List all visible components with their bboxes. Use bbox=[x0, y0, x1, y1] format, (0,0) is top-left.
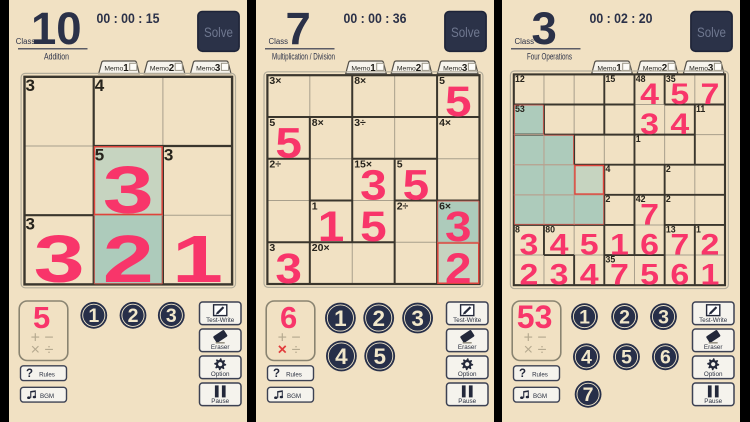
svg-text:2: 2 bbox=[103, 221, 154, 296]
svg-text:12: 12 bbox=[515, 74, 525, 84]
svg-text:5: 5 bbox=[403, 161, 430, 209]
svg-text:3: 3 bbox=[26, 76, 35, 95]
svg-text:4: 4 bbox=[581, 347, 592, 369]
svg-text:1: 1 bbox=[88, 305, 99, 327]
svg-text:5: 5 bbox=[445, 77, 472, 125]
svg-text:Test-Write: Test-Write bbox=[453, 317, 482, 324]
svg-text:3: 3 bbox=[640, 107, 659, 140]
svg-text:Memo: Memo bbox=[150, 65, 169, 72]
svg-text:Rules: Rules bbox=[532, 371, 548, 378]
svg-text:Test-Write: Test-Write bbox=[206, 317, 235, 324]
svg-text:4: 4 bbox=[95, 76, 105, 95]
svg-text:6: 6 bbox=[671, 258, 690, 291]
svg-text:1: 1 bbox=[334, 306, 347, 331]
svg-text:Solve: Solve bbox=[697, 25, 726, 40]
svg-text:8×: 8× bbox=[354, 75, 366, 87]
svg-text:3: 3 bbox=[520, 227, 539, 260]
svg-text:4: 4 bbox=[606, 164, 611, 174]
svg-text:1: 1 bbox=[701, 258, 720, 291]
svg-text:2: 2 bbox=[701, 227, 720, 260]
svg-text:×: × bbox=[524, 342, 533, 359]
svg-text:2: 2 bbox=[662, 63, 668, 74]
svg-text:2: 2 bbox=[445, 244, 472, 292]
svg-text:×: × bbox=[278, 342, 287, 359]
svg-text:3: 3 bbox=[34, 221, 85, 296]
svg-text:Memo: Memo bbox=[196, 65, 215, 72]
svg-text:1: 1 bbox=[318, 202, 345, 250]
svg-text:5: 5 bbox=[275, 119, 302, 167]
svg-text:3: 3 bbox=[166, 305, 177, 327]
svg-text:00 : 00 : 36: 00 : 00 : 36 bbox=[344, 11, 407, 26]
svg-text:3: 3 bbox=[215, 63, 221, 74]
svg-text:4: 4 bbox=[580, 258, 599, 291]
svg-text:15: 15 bbox=[606, 74, 616, 84]
svg-text:Four Operations: Four Operations bbox=[527, 52, 572, 62]
svg-text:Eraser: Eraser bbox=[458, 344, 477, 351]
svg-text:5: 5 bbox=[360, 202, 387, 250]
svg-text:Multiplication / Division: Multiplication / Division bbox=[272, 52, 335, 62]
svg-text:5: 5 bbox=[621, 347, 632, 369]
svg-text:2: 2 bbox=[372, 306, 385, 331]
svg-text:BGM: BGM bbox=[287, 393, 301, 400]
svg-text:Pause: Pause bbox=[211, 398, 229, 405]
svg-text:3÷: 3÷ bbox=[354, 117, 366, 129]
svg-text:2: 2 bbox=[666, 194, 671, 204]
svg-text:7: 7 bbox=[640, 197, 659, 230]
svg-text:3×: 3× bbox=[269, 75, 281, 87]
svg-text:4: 4 bbox=[671, 107, 690, 140]
svg-text:4: 4 bbox=[335, 344, 348, 369]
svg-text:6: 6 bbox=[660, 347, 671, 369]
svg-text:3: 3 bbox=[658, 307, 669, 329]
svg-text:Option: Option bbox=[211, 371, 230, 378]
svg-text:5: 5 bbox=[671, 77, 690, 110]
svg-text:÷: ÷ bbox=[292, 342, 301, 359]
svg-text:BGM: BGM bbox=[533, 393, 547, 400]
svg-text:10: 10 bbox=[31, 3, 82, 54]
svg-text:53: 53 bbox=[517, 299, 553, 335]
svg-text:5: 5 bbox=[580, 227, 599, 260]
svg-text:?: ? bbox=[519, 368, 526, 380]
svg-text:Option: Option bbox=[458, 371, 477, 378]
svg-text:00 : 02 : 20: 00 : 02 : 20 bbox=[590, 11, 653, 26]
svg-text:2: 2 bbox=[520, 258, 539, 291]
svg-text:3: 3 bbox=[708, 63, 714, 74]
svg-text:5: 5 bbox=[373, 344, 386, 369]
svg-text:1: 1 bbox=[172, 221, 223, 296]
svg-text:3: 3 bbox=[532, 3, 557, 54]
svg-text:?: ? bbox=[273, 368, 280, 380]
svg-text:2: 2 bbox=[606, 194, 611, 204]
svg-text:1: 1 bbox=[123, 63, 129, 74]
svg-text:3: 3 bbox=[275, 244, 302, 292]
svg-text:BGM: BGM bbox=[40, 393, 54, 400]
svg-text:Pause: Pause bbox=[458, 398, 476, 405]
svg-text:Option: Option bbox=[704, 371, 723, 378]
svg-text:Eraser: Eraser bbox=[704, 344, 723, 351]
svg-text:2: 2 bbox=[169, 63, 175, 74]
svg-text:3: 3 bbox=[411, 306, 424, 331]
svg-text:7: 7 bbox=[701, 77, 720, 110]
svg-text:3: 3 bbox=[550, 258, 569, 291]
svg-text:53: 53 bbox=[515, 104, 525, 114]
svg-text:Rules: Rules bbox=[39, 371, 55, 378]
svg-text:2: 2 bbox=[666, 164, 671, 174]
svg-text:7: 7 bbox=[286, 3, 311, 54]
svg-text:Solve: Solve bbox=[451, 25, 480, 40]
svg-text:3: 3 bbox=[103, 152, 154, 227]
svg-text:Solve: Solve bbox=[204, 25, 233, 40]
svg-text:?: ? bbox=[26, 368, 33, 380]
svg-text:3: 3 bbox=[164, 145, 173, 164]
svg-text:5: 5 bbox=[640, 258, 659, 291]
svg-text:Addition: Addition bbox=[44, 52, 69, 62]
svg-text:Test-Write: Test-Write bbox=[699, 317, 728, 324]
svg-text:Pause: Pause bbox=[705, 398, 723, 405]
svg-text:1: 1 bbox=[616, 63, 622, 74]
svg-text:÷: ÷ bbox=[538, 342, 547, 359]
svg-text:7: 7 bbox=[671, 227, 690, 260]
svg-text:÷: ÷ bbox=[45, 342, 54, 359]
svg-text:2: 2 bbox=[128, 305, 139, 327]
svg-text:7: 7 bbox=[583, 384, 594, 406]
svg-text:4: 4 bbox=[550, 227, 569, 260]
svg-text:8×: 8× bbox=[312, 117, 324, 129]
svg-text:×: × bbox=[31, 342, 40, 359]
svg-text:2: 2 bbox=[619, 307, 630, 329]
svg-text:1: 1 bbox=[579, 307, 590, 329]
svg-text:00 : 00 : 15: 00 : 00 : 15 bbox=[97, 11, 160, 26]
svg-text:Memo: Memo bbox=[104, 65, 123, 72]
svg-text:6: 6 bbox=[640, 227, 659, 260]
svg-text:Eraser: Eraser bbox=[211, 344, 230, 351]
svg-text:1: 1 bbox=[610, 227, 629, 260]
svg-text:7: 7 bbox=[610, 258, 629, 291]
svg-text:4: 4 bbox=[640, 77, 659, 110]
svg-text:Rules: Rules bbox=[286, 371, 302, 378]
